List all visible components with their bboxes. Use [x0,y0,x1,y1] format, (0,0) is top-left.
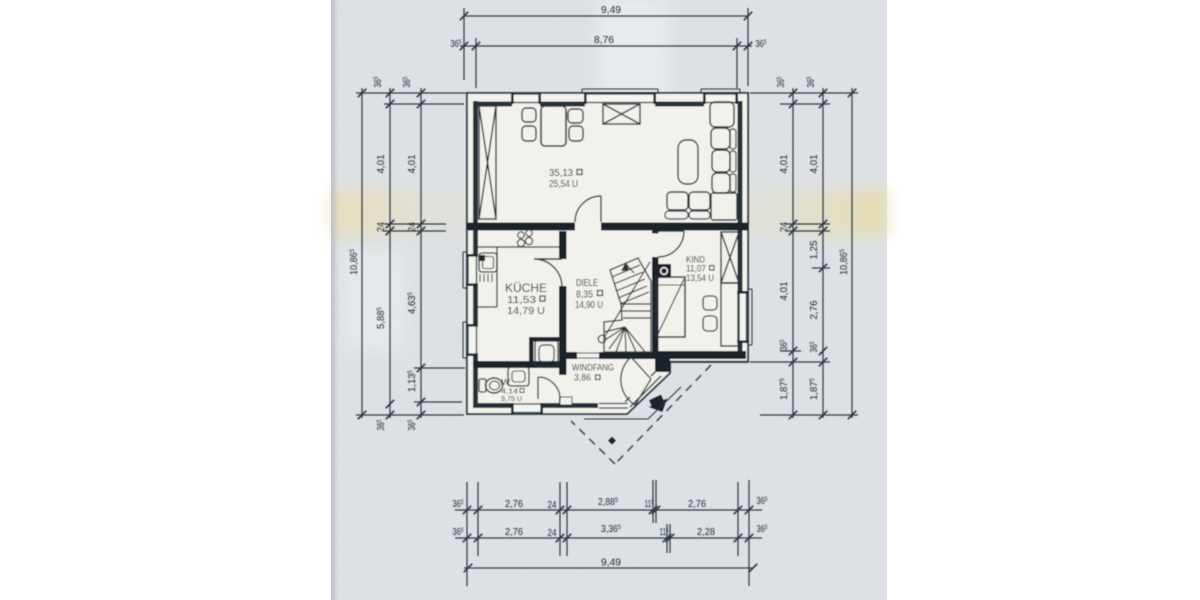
svg-text:4,01: 4,01 [779,281,790,300]
svg-text:DIELE: DIELE [576,277,598,289]
svg-text:WINDFANG: WINDFANG [572,363,614,373]
svg-text:24: 24 [779,222,790,232]
svg-text:13,54 U: 13,54 U [686,273,714,284]
svg-text:2,76: 2,76 [505,499,523,510]
svg-text:14,79 U: 14,79 U [507,305,545,317]
svg-text:9,49: 9,49 [601,5,621,16]
svg-text:9,49: 9,49 [601,558,621,569]
svg-text:4,01: 4,01 [779,154,790,173]
svg-text:24: 24 [376,222,387,232]
svg-text:1,25: 1,25 [809,240,820,259]
svg-text:10,865: 10,865 [349,249,360,275]
svg-text:24: 24 [548,528,557,539]
svg-text:2,76: 2,76 [688,499,706,510]
svg-text:14,90 U: 14,90 U [575,299,603,311]
svg-text:2,76: 2,76 [505,527,523,538]
svg-text:8,76: 8,76 [594,35,614,46]
svg-text:10,865: 10,865 [839,249,850,275]
svg-text:3,86: 3,86 [574,373,591,383]
svg-text:2,28: 2,28 [697,527,715,538]
svg-text:24: 24 [407,222,418,232]
svg-text:4,01: 4,01 [407,154,418,173]
svg-text:4,01: 4,01 [376,154,387,173]
svg-text:2,76: 2,76 [809,300,820,319]
svg-text:24: 24 [548,500,557,511]
svg-text:9,75 U: 9,75 U [501,394,522,403]
svg-text:4,01: 4,01 [809,154,820,173]
svg-text:25,54 U: 25,54 U [549,178,578,190]
